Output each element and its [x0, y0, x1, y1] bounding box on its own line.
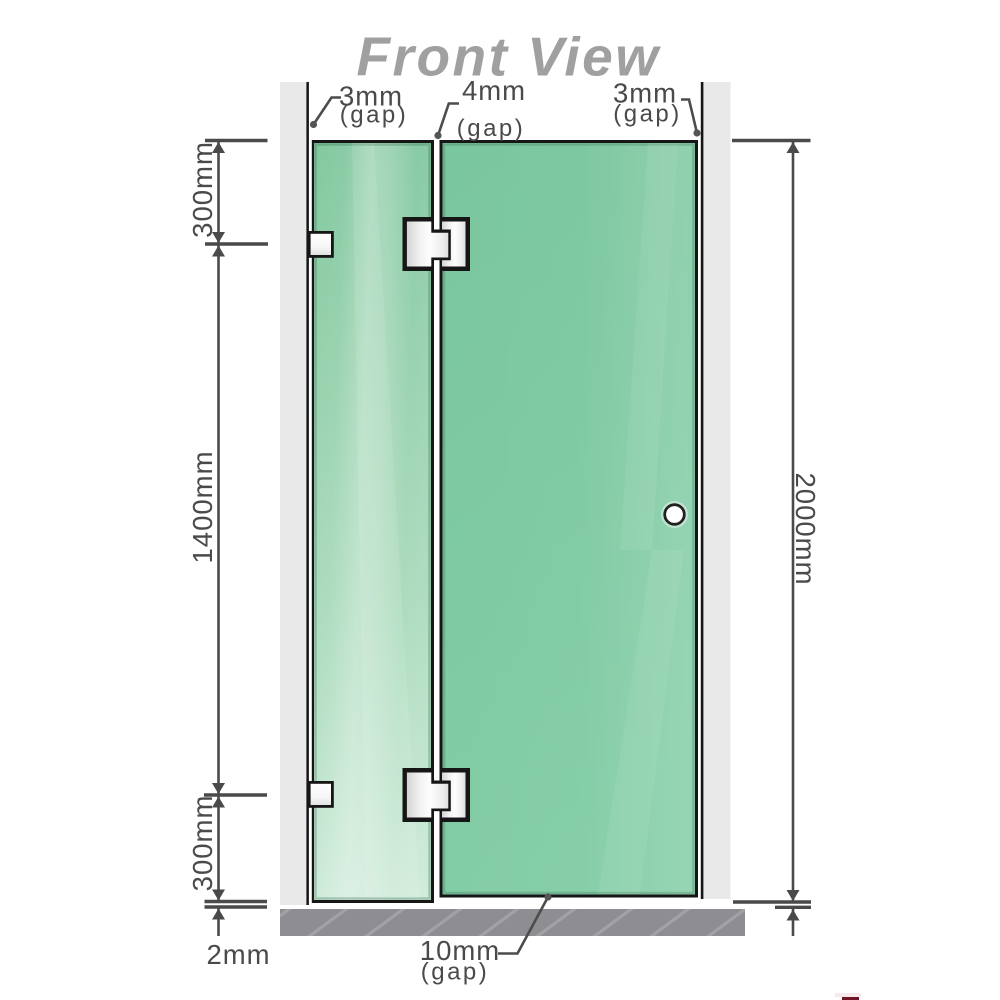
svg-text:(gap): (gap)	[457, 115, 526, 142]
svg-text:(gap): (gap)	[613, 101, 682, 128]
svg-text:2mm: 2mm	[206, 939, 270, 970]
svg-text:1400mm: 1400mm	[187, 451, 218, 564]
svg-text:(gap): (gap)	[340, 102, 409, 129]
svg-text:(gap): (gap)	[421, 959, 490, 986]
svg-text:300mm: 300mm	[187, 141, 218, 238]
svg-text:2000mm: 2000mm	[790, 473, 821, 586]
svg-text:300mm: 300mm	[187, 795, 218, 892]
svg-text:Front View: Front View	[356, 26, 661, 88]
